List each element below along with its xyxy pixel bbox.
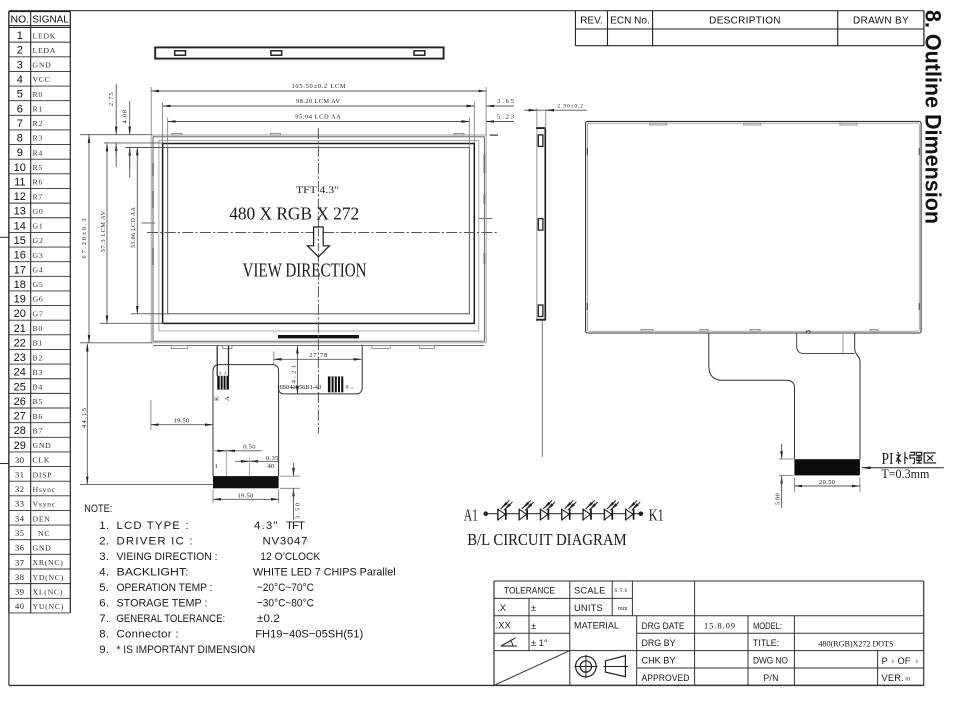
- svg-text:REV.: REV.: [580, 16, 602, 27]
- svg-text:TFT: TFT: [286, 520, 305, 532]
- svg-text:UNITS: UNITS: [574, 603, 603, 613]
- svg-text:LEDK: LEDK: [33, 31, 57, 40]
- svg-text:5.00: 5.00: [775, 493, 782, 505]
- svg-text:DRIVER IC :: DRIVER IC :: [117, 536, 193, 548]
- svg-text:23: 23: [14, 352, 26, 364]
- svg-text:R0: R0: [33, 90, 44, 99]
- svg-text:G5: G5: [33, 280, 44, 289]
- svg-text:6.: 6.: [99, 598, 109, 610]
- svg-text:±: ±: [531, 621, 536, 631]
- svg-text:DWG NO: DWG NO: [753, 656, 788, 666]
- svg-text:38: 38: [15, 572, 25, 582]
- svg-text:−20°C~70°C: −20°C~70°C: [257, 582, 314, 594]
- svg-text:K: K: [219, 371, 222, 375]
- svg-text:4.: 4.: [99, 567, 109, 579]
- svg-text:53.86 LCD AA: 53.86 LCD AA: [130, 206, 137, 248]
- svg-text:7.: 7.: [99, 613, 109, 625]
- svg-text:±: ±: [531, 603, 536, 613]
- svg-text:±0.2: ±0.2: [257, 613, 280, 625]
- svg-text:APPROVED: APPROVED: [642, 673, 690, 683]
- svg-text:GENERAL TOLERANCE:: GENERAL TOLERANCE:: [117, 613, 226, 625]
- svg-text:B7: B7: [33, 426, 44, 435]
- svg-text:20.50: 20.50: [819, 479, 835, 486]
- svg-text:30: 30: [15, 455, 25, 465]
- svg-text:1: 1: [17, 30, 23, 42]
- svg-text:3: 3: [17, 59, 23, 71]
- svg-text:98.20 LCM AV: 98.20 LCM AV: [296, 98, 340, 105]
- svg-text:VER.: VER.: [882, 673, 905, 683]
- svg-text:35: 35: [15, 528, 25, 538]
- svg-text:CLK: CLK: [33, 456, 51, 465]
- svg-text:G7: G7: [33, 309, 44, 318]
- svg-text:DISP: DISP: [33, 470, 53, 479]
- svg-text:17: 17: [14, 264, 26, 276]
- svg-text:33: 33: [15, 499, 25, 509]
- svg-text:8: 8: [17, 133, 23, 145]
- svg-text:15: 15: [14, 235, 26, 247]
- svg-text:G6: G6: [33, 295, 44, 304]
- svg-text:9.: 9.: [99, 644, 109, 656]
- svg-text:2.: 2.: [99, 536, 109, 548]
- svg-text:3.65: 3.65: [497, 98, 514, 105]
- svg-text:K1: K1: [649, 505, 664, 524]
- svg-text:34: 34: [15, 513, 25, 523]
- svg-text:26: 26: [14, 396, 26, 408]
- svg-text:YU(NC): YU(NC): [33, 602, 65, 611]
- svg-text:2.90±0.2: 2.90±0.2: [558, 104, 584, 110]
- svg-text:27.78: 27.78: [309, 352, 327, 359]
- svg-text:5.23: 5.23: [497, 114, 514, 121]
- svg-text:G1: G1: [33, 222, 44, 231]
- svg-text:* IS IMPORTANT DIMENSION: * IS IMPORTANT DIMENSION: [117, 644, 256, 656]
- svg-text:20: 20: [14, 308, 26, 320]
- svg-text:SIGNAL: SIGNAL: [32, 14, 69, 26]
- svg-text:S.T.S: S.T.S: [615, 588, 628, 594]
- svg-text:4.08: 4.08: [121, 110, 128, 124]
- svg-text:19.50: 19.50: [237, 492, 253, 499]
- svg-text:GND: GND: [33, 61, 52, 70]
- svg-text:LCD TYPE :: LCD TYPE :: [117, 520, 189, 532]
- svg-text:R3: R3: [33, 134, 44, 143]
- svg-text:XL(NC): XL(NC): [33, 587, 64, 596]
- svg-text:12 O’CLOCK: 12 O’CLOCK: [260, 551, 320, 563]
- svg-text:R6: R6: [33, 178, 44, 187]
- svg-text:67.20±0.3: 67.20±0.3: [81, 219, 88, 259]
- svg-text:1: 1: [892, 659, 895, 665]
- svg-text:DESCRIPTION: DESCRIPTION: [709, 16, 781, 27]
- svg-text:31: 31: [15, 469, 25, 479]
- svg-text:R5: R5: [33, 163, 44, 172]
- svg-text:B2: B2: [33, 353, 44, 362]
- svg-text:15.8.09: 15.8.09: [704, 621, 735, 631]
- svg-text:DRAWN BY: DRAWN BY: [853, 16, 909, 27]
- svg-text:480 X RGB X 272: 480 X RGB X 272: [229, 203, 359, 223]
- svg-text:37: 37: [15, 557, 25, 567]
- svg-text:01: 01: [906, 676, 912, 682]
- svg-text:DRG DATE: DRG DATE: [642, 621, 685, 631]
- svg-text:22: 22: [14, 337, 26, 349]
- svg-text:T=0.3mm: T=0.3mm: [881, 466, 929, 481]
- svg-text:B0: B0: [33, 324, 44, 333]
- svg-text:0.35: 0.35: [266, 455, 279, 462]
- svg-text:40: 40: [15, 601, 25, 611]
- svg-text:32: 32: [15, 484, 25, 494]
- svg-text:−30°C~80°C: −30°C~80°C: [257, 598, 314, 610]
- svg-text:5.: 5.: [99, 582, 109, 594]
- svg-text:R4: R4: [33, 148, 44, 157]
- svg-text:16: 16: [14, 250, 26, 262]
- svg-text:Hsync: Hsync: [33, 485, 56, 494]
- svg-text:A1: A1: [464, 505, 478, 524]
- svg-text:B4: B4: [33, 383, 44, 392]
- svg-text:2.75: 2.75: [108, 93, 115, 107]
- svg-text:Connector :: Connector :: [117, 629, 179, 641]
- svg-text:11: 11: [14, 176, 25, 188]
- svg-text:HB043056B1-40: HB043056B1-40: [277, 384, 321, 391]
- svg-text:G2: G2: [33, 236, 44, 245]
- svg-text:19: 19: [14, 294, 26, 306]
- svg-text:TOLERANCE: TOLERANCE: [504, 586, 555, 596]
- svg-text:VIEING DIRECTION :: VIEING DIRECTION :: [117, 551, 218, 563]
- svg-text:OF: OF: [898, 656, 911, 666]
- svg-text:27: 27: [14, 411, 26, 423]
- svg-text:B6: B6: [33, 412, 44, 421]
- svg-text:B/L CIRCUIT DIAGRAM: B/L CIRCUIT DIAGRAM: [467, 530, 627, 549]
- svg-text:NO.: NO.: [10, 14, 29, 26]
- svg-text:13: 13: [14, 206, 26, 218]
- svg-text:mm: mm: [618, 606, 628, 612]
- svg-text:4: 4: [17, 74, 23, 86]
- svg-text:21: 21: [14, 323, 26, 335]
- svg-text:G3: G3: [33, 251, 44, 260]
- svg-text:MATERIAL: MATERIAL: [574, 621, 619, 631]
- svg-text:A: A: [224, 396, 231, 401]
- svg-text:NC: NC: [38, 529, 50, 538]
- svg-text:± 1°: ± 1°: [531, 638, 548, 648]
- svg-text:R1: R1: [33, 104, 44, 113]
- svg-text:FH19−40S−05SH(51): FH19−40S−05SH(51): [255, 629, 363, 641]
- svg-text:MODEL:: MODEL:: [753, 621, 782, 631]
- svg-text:480(RGB)X272 DOTS: 480(RGB)X272 DOTS: [819, 638, 894, 648]
- svg-text:18: 18: [14, 279, 26, 291]
- svg-text:DRG BY: DRG BY: [642, 638, 676, 648]
- svg-text:TITLE:: TITLE:: [753, 638, 779, 648]
- svg-text:G0: G0: [33, 207, 44, 216]
- svg-text:39: 39: [15, 587, 25, 597]
- svg-text:19.50: 19.50: [173, 417, 189, 424]
- svg-text:Vsync: Vsync: [33, 500, 56, 509]
- svg-text:CHK BY: CHK BY: [642, 656, 676, 666]
- svg-text:YD(NC): YD(NC): [33, 573, 65, 582]
- svg-text:PI: PI: [882, 449, 894, 468]
- svg-text:B3: B3: [33, 368, 44, 377]
- svg-text:40: 40: [268, 463, 275, 470]
- svg-text:BACKLIGHT:: BACKLIGHT:: [117, 567, 189, 579]
- svg-text:2: 2: [17, 45, 23, 57]
- svg-text:P/N: P/N: [763, 673, 778, 683]
- svg-text:1: 1: [350, 387, 355, 389]
- svg-text:ECN No.: ECN No.: [610, 16, 649, 27]
- svg-text:OPERATION TEMP :: OPERATION TEMP :: [117, 582, 213, 594]
- svg-text:95.04 LCD AA: 95.04 LCD AA: [295, 114, 341, 121]
- svg-text:B1: B1: [33, 339, 44, 348]
- svg-text:STORAGE TEMP :: STORAGE TEMP :: [117, 598, 208, 610]
- svg-text:B5: B5: [33, 397, 44, 406]
- svg-text:NV3047: NV3047: [263, 536, 308, 548]
- svg-text:A: A: [224, 371, 227, 375]
- svg-text:G4: G4: [33, 265, 44, 274]
- svg-text:VIEW DIRECTION: VIEW DIRECTION: [243, 260, 367, 282]
- svg-text:14: 14: [14, 220, 26, 232]
- svg-text:GND: GND: [33, 441, 52, 450]
- svg-text:WHITE LED 7 CHIPS Parallel: WHITE LED 7 CHIPS Parallel: [253, 567, 396, 579]
- svg-text:1.: 1.: [99, 520, 109, 532]
- svg-text:12: 12: [14, 191, 26, 203]
- svg-text:25: 25: [14, 381, 26, 393]
- svg-text:DEN: DEN: [33, 514, 51, 523]
- svg-text:3.50: 3.50: [295, 503, 302, 519]
- svg-text:5: 5: [17, 89, 23, 101]
- svg-text:R7: R7: [33, 192, 44, 201]
- svg-text:28: 28: [14, 425, 26, 437]
- svg-text:7: 7: [17, 118, 23, 130]
- svg-text:TFT 4.3": TFT 4.3": [296, 186, 339, 196]
- svg-text:LEDA: LEDA: [33, 46, 57, 55]
- svg-text:SCALE: SCALE: [574, 586, 606, 596]
- svg-text:3.: 3.: [99, 551, 109, 563]
- svg-text:36: 36: [15, 543, 25, 553]
- svg-text:.XX: .XX: [496, 621, 512, 631]
- svg-text:8. Outline Dimension: 8. Outline Dimension: [921, 10, 946, 224]
- svg-text:8.: 8.: [99, 629, 109, 641]
- svg-text:6: 6: [17, 103, 23, 115]
- svg-text:R2: R2: [33, 119, 44, 128]
- svg-text:K: K: [213, 396, 220, 401]
- svg-text:XR(NC): XR(NC): [33, 558, 64, 567]
- svg-text:1: 1: [215, 463, 218, 470]
- svg-text:1: 1: [916, 659, 919, 665]
- svg-text:105.50±0.2 LCM: 105.50±0.2 LCM: [292, 83, 346, 90]
- svg-text:57.3 LCM AV: 57.3 LCM AV: [100, 210, 107, 252]
- svg-text:29: 29: [14, 440, 26, 452]
- svg-text:0.50: 0.50: [243, 443, 256, 450]
- svg-text:9: 9: [17, 147, 23, 159]
- svg-text:NOTE:: NOTE:: [84, 503, 112, 515]
- svg-text:44.15: 44.15: [81, 408, 88, 428]
- svg-text:.X: .X: [497, 603, 506, 613]
- svg-text:VCC: VCC: [33, 75, 51, 84]
- svg-text:4.3": 4.3": [254, 520, 278, 532]
- svg-text:24: 24: [14, 367, 26, 379]
- svg-text:P: P: [882, 656, 888, 666]
- svg-text:10: 10: [14, 162, 26, 174]
- svg-text:GND: GND: [33, 544, 52, 553]
